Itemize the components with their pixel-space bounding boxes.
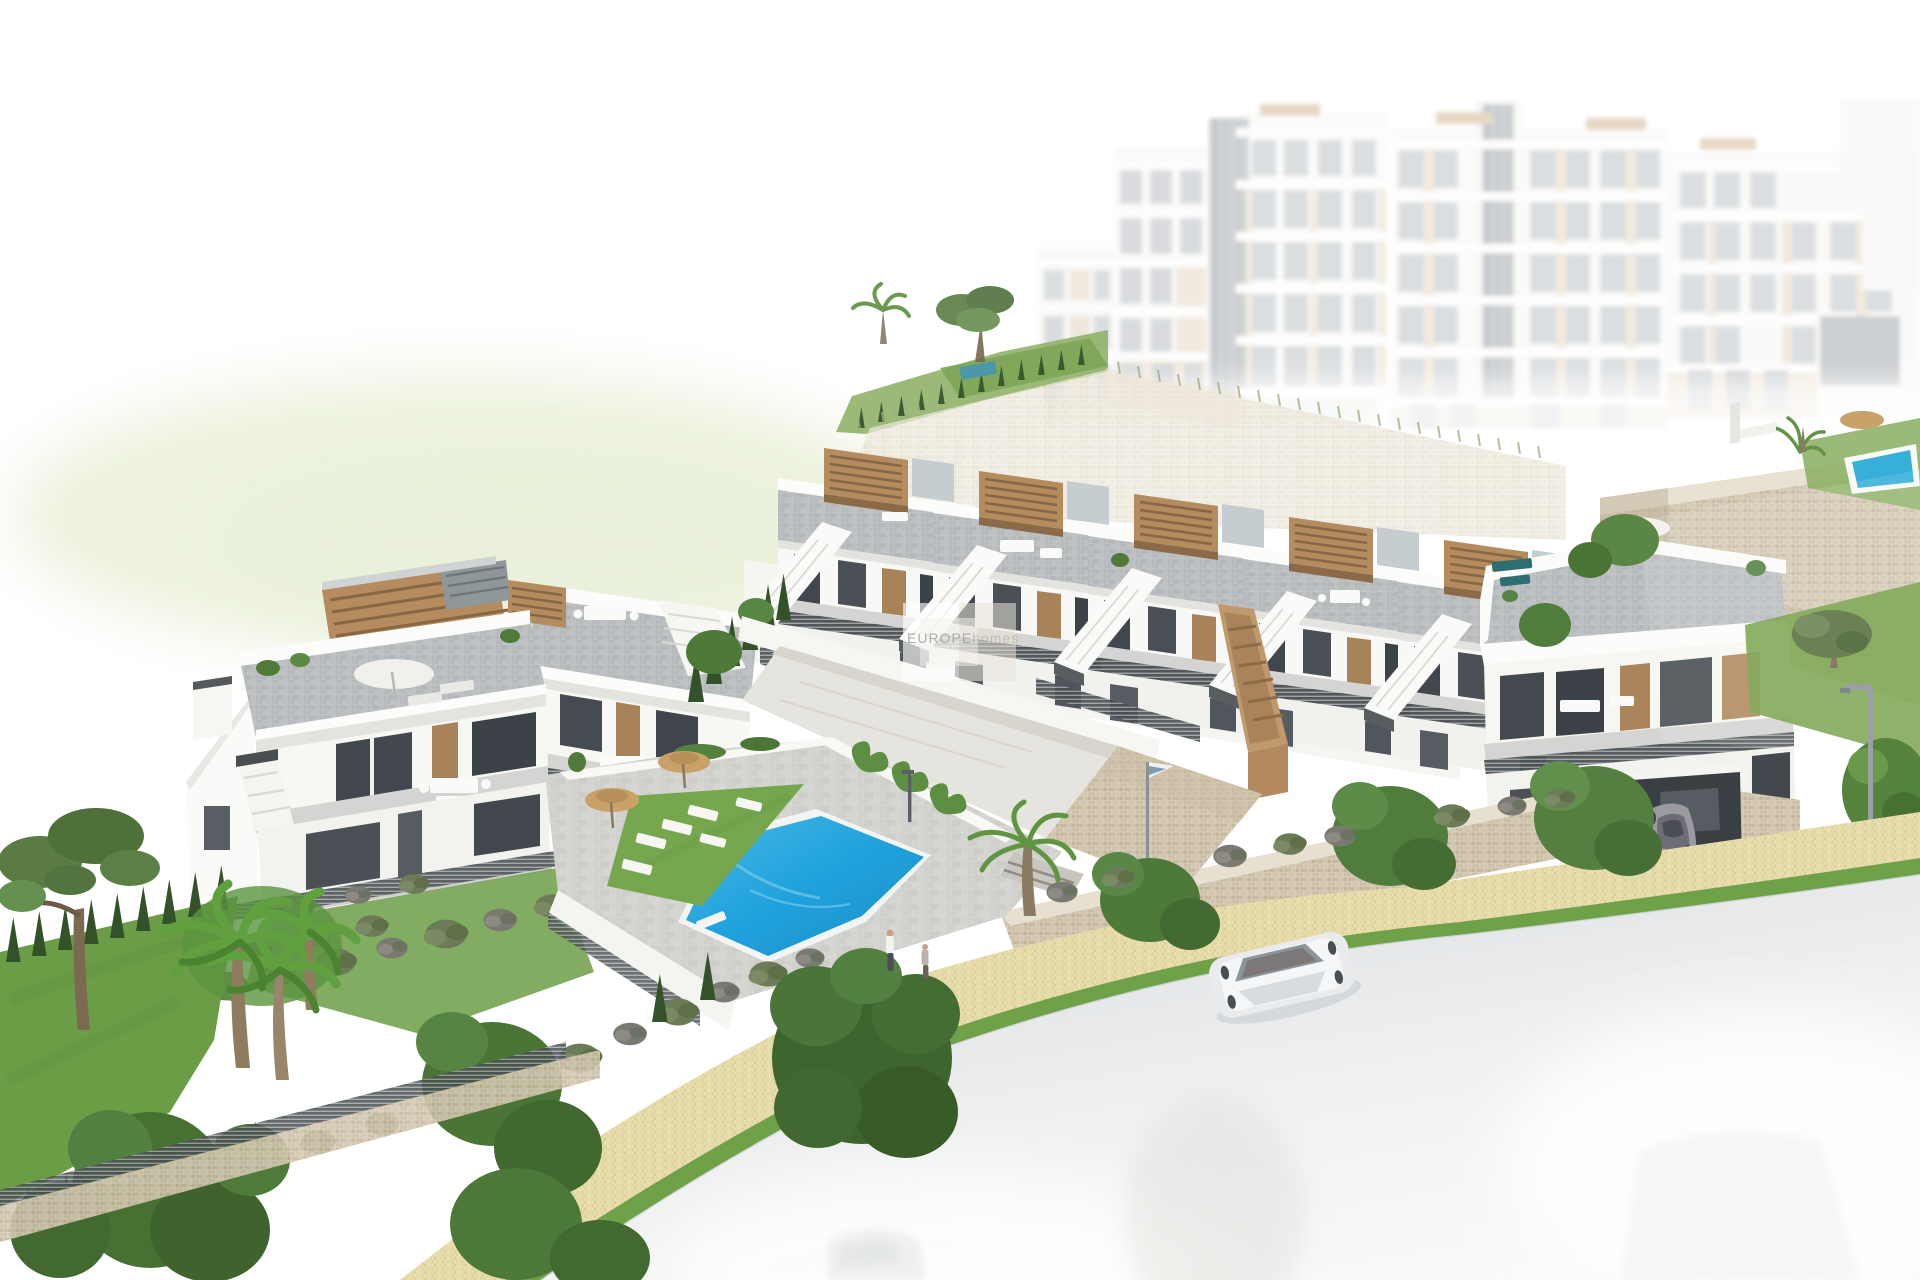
svg-text:EUROPEhomes: EUROPEhomes [907, 630, 1019, 646]
